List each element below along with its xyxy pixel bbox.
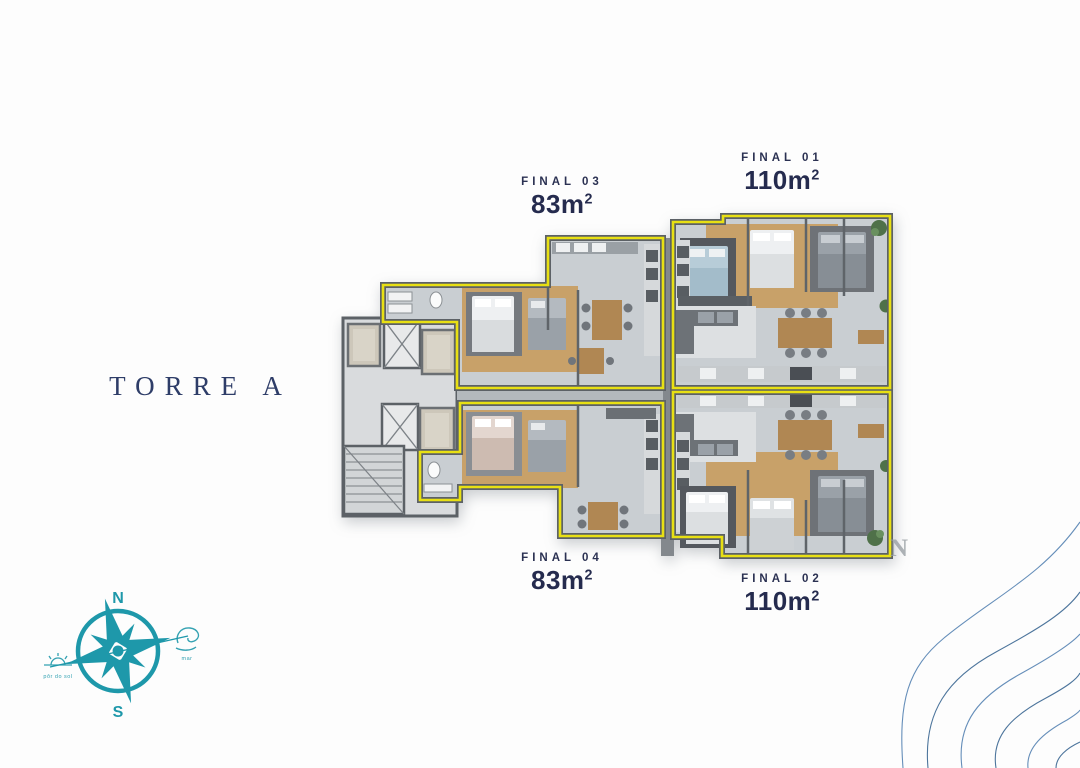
unit-area: 83m2: [477, 565, 647, 596]
compass-north-label: N: [112, 590, 124, 607]
unit-label-final-02: FINAL 02 110m2: [697, 573, 867, 617]
unit-label-final-01: FINAL 01 110m2: [697, 152, 867, 196]
sunset-label: pôr do sol: [43, 674, 72, 680]
unit-label-final-04: FINAL 04 83m2: [477, 552, 647, 596]
unit-final-02: [672, 392, 892, 556]
decorative-waves: [902, 522, 1080, 768]
sea-label: mar: [182, 656, 193, 662]
unit-name: FINAL 01: [697, 152, 867, 164]
compass-south-label: S: [113, 704, 124, 721]
stairs: [344, 446, 404, 514]
unit-name: FINAL 03: [477, 176, 647, 188]
unit-final-01: [672, 216, 893, 388]
unit-area: 83m2: [477, 189, 647, 220]
unit-name: FINAL 02: [697, 573, 867, 585]
floor-plan: [343, 216, 893, 556]
compass-rose: N S pôr do sol mar: [43, 586, 198, 721]
unit-area: 110m2: [697, 165, 867, 196]
sea-wave-icon: [176, 628, 198, 650]
watermark-letter: N: [890, 535, 908, 562]
tower-label: TORRE A: [103, 371, 298, 402]
unit-label-final-03: FINAL 03 83m2: [477, 176, 647, 220]
unit-area: 110m2: [697, 586, 867, 617]
unit-name: FINAL 04: [477, 552, 647, 564]
